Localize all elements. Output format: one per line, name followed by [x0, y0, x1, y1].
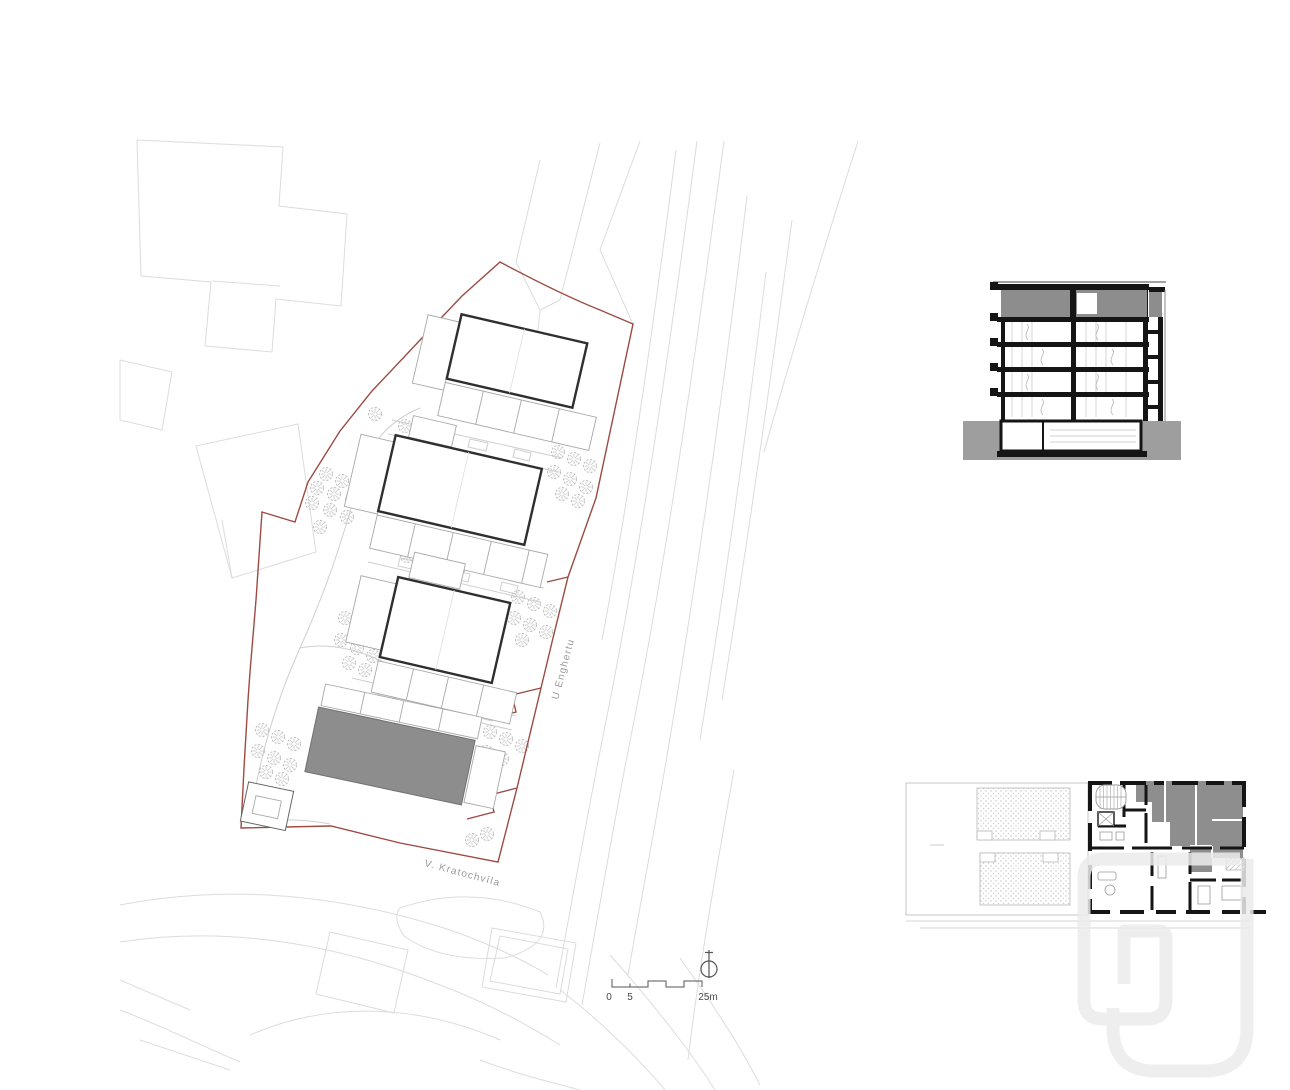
plan-elevator — [1098, 812, 1114, 826]
scale-bar: 0 5 25m — [606, 979, 718, 1003]
scale-label-25m: 25m — [698, 992, 717, 1003]
scale-label-5: 5 — [627, 992, 633, 1003]
street-label-v-kratochvila: V. Kratochvíla — [423, 858, 501, 889]
north-arrow-icon — [701, 950, 717, 978]
architectural-drawing-sheet: U Enghertu V. Kratochvíla 0 5 25m — [0, 0, 1290, 1090]
street-label-u-enghertu: U Enghertu — [550, 637, 577, 700]
plan-stair — [1096, 785, 1126, 809]
scale-label-0: 0 — [606, 992, 612, 1003]
section-drawing — [963, 282, 1181, 460]
drawing-canvas: U Enghertu V. Kratochvíla 0 5 25m — [0, 0, 1290, 1090]
watermark-logo-icon — [1084, 859, 1247, 1071]
site-small-structure — [240, 782, 293, 831]
proposed-buildings — [240, 307, 612, 831]
